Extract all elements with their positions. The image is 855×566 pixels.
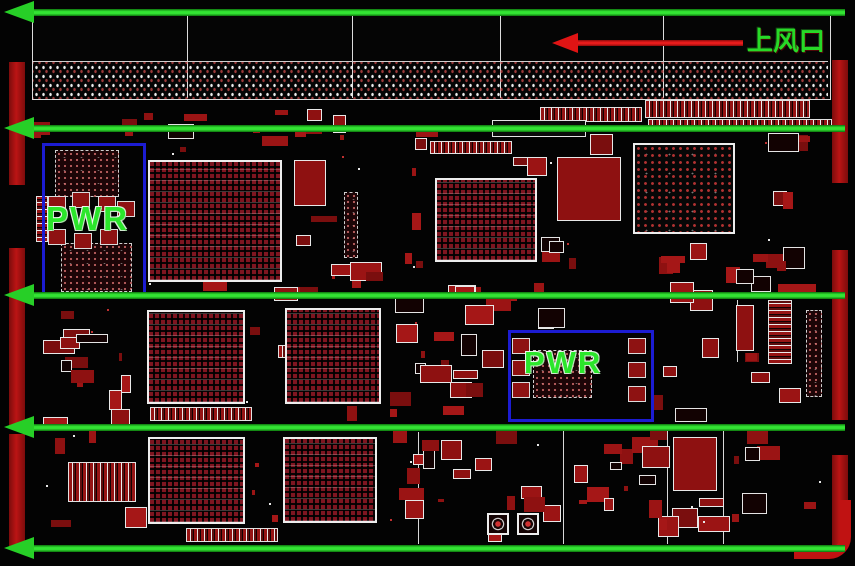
smd-component	[698, 516, 730, 532]
smd-component	[358, 168, 360, 170]
smd-component	[819, 481, 821, 483]
power-pad	[512, 382, 530, 398]
smd-component	[642, 446, 670, 468]
smd-component	[659, 519, 667, 530]
edge-copper-bar-left	[9, 434, 25, 548]
smd-component	[465, 305, 494, 325]
smd-component	[296, 235, 311, 246]
smd-component	[366, 272, 383, 281]
smd-component	[434, 332, 454, 341]
smd-component	[453, 469, 471, 479]
smd-component	[421, 351, 425, 358]
smd-component	[690, 243, 707, 260]
bga-component	[148, 160, 282, 282]
airflow-arrow-body	[30, 424, 845, 431]
smd-component	[407, 468, 420, 484]
edge-copper-bar-left	[9, 248, 25, 428]
smd-component	[663, 366, 677, 377]
power-block-component	[736, 305, 754, 351]
smd-component	[691, 506, 693, 508]
smd-component	[262, 136, 288, 146]
smd-component	[661, 256, 685, 263]
smd-component	[779, 388, 801, 403]
smd-component	[55, 438, 65, 454]
smd-component	[675, 408, 707, 422]
smd-component	[751, 372, 770, 383]
smd-component	[538, 308, 565, 328]
pwr-zone-label-1: PWR	[46, 202, 129, 235]
smd-component	[783, 192, 793, 209]
pcb-layout-board: 上风口 PWRPWR	[0, 0, 855, 566]
connector-strip	[430, 141, 512, 154]
smd-component	[524, 497, 545, 512]
smd-component	[569, 258, 576, 269]
smd-component	[311, 216, 337, 222]
smd-component	[745, 447, 760, 461]
connector-strip	[645, 100, 810, 118]
smd-component	[550, 162, 552, 164]
smd-component	[46, 485, 48, 487]
smd-component	[71, 370, 94, 383]
smd-component	[703, 521, 705, 523]
smd-component	[307, 109, 322, 121]
edge-copper-bar-right	[832, 60, 848, 183]
smd-component	[393, 429, 407, 443]
smd-component	[610, 462, 622, 470]
smd-component	[119, 353, 122, 361]
smd-component	[567, 243, 569, 245]
smd-component	[275, 110, 288, 115]
smd-component	[453, 370, 478, 379]
smd-component	[415, 138, 427, 150]
smd-component	[390, 392, 411, 406]
smd-component	[513, 157, 528, 166]
smd-component	[751, 276, 771, 292]
smd-component	[734, 456, 739, 464]
bga-component	[148, 437, 245, 524]
edge-copper-bar-right	[832, 250, 848, 420]
smd-component	[61, 311, 74, 319]
bga-component	[285, 308, 381, 404]
connector-strip	[768, 300, 792, 364]
smd-component	[422, 440, 439, 451]
smd-component	[574, 465, 588, 483]
smd-component	[184, 114, 207, 121]
power-pad	[628, 362, 646, 378]
smd-component	[753, 254, 768, 262]
smd-component	[405, 500, 424, 519]
pwr-zone-label-2: PWR	[524, 347, 602, 378]
airflow-arrow-head	[4, 1, 34, 23]
smd-component	[699, 498, 724, 507]
vent-arrow-head	[552, 33, 578, 53]
smd-component	[443, 406, 464, 415]
vent-arrow-body	[574, 40, 743, 46]
smd-component	[768, 133, 799, 152]
smd-component	[203, 282, 227, 291]
mounting-component	[517, 513, 539, 535]
smd-component	[272, 515, 278, 522]
smd-component	[172, 153, 174, 155]
smd-component	[412, 168, 416, 176]
connector-strip	[68, 462, 136, 502]
smd-component	[537, 444, 539, 446]
smd-component	[742, 493, 767, 514]
airflow-arrow-body	[30, 292, 845, 299]
connector-dot-grid	[33, 61, 828, 99]
smd-component	[109, 390, 122, 410]
airflow-arrow-head	[4, 284, 34, 306]
silkscreen-line	[563, 430, 564, 544]
smd-component	[420, 365, 452, 383]
airflow-arrow-body	[30, 125, 845, 132]
smd-component	[590, 134, 613, 155]
smd-component	[246, 401, 248, 403]
smd-component	[340, 135, 344, 140]
smd-component	[667, 263, 680, 273]
dot-matrix-component	[806, 310, 822, 397]
smd-component	[347, 406, 357, 421]
smd-component	[252, 490, 255, 495]
bga-component	[283, 437, 377, 523]
smd-component	[416, 261, 423, 268]
smd-component	[441, 440, 462, 460]
power-pad	[628, 386, 646, 402]
smd-component	[410, 461, 412, 463]
smd-component	[269, 503, 271, 505]
smd-component	[76, 334, 108, 343]
smd-component	[144, 113, 153, 120]
smd-component	[405, 253, 412, 264]
smd-component	[549, 241, 564, 253]
smd-component	[466, 383, 483, 397]
smd-component	[461, 334, 477, 356]
smd-component	[121, 375, 131, 393]
smd-component	[331, 264, 351, 276]
bga-component	[147, 310, 245, 404]
smd-component	[732, 514, 739, 522]
smd-component	[73, 435, 75, 437]
smd-component	[250, 327, 260, 335]
smd-component	[507, 496, 515, 510]
smd-component	[783, 247, 805, 269]
smd-component	[149, 283, 151, 285]
bga-component	[435, 178, 537, 262]
smd-component	[624, 486, 628, 491]
smd-component	[475, 458, 492, 471]
power-block-component	[557, 157, 621, 221]
smd-component	[604, 498, 614, 511]
smd-component	[702, 338, 719, 358]
connector-strip	[150, 407, 252, 421]
smd-component	[604, 444, 622, 454]
smd-component	[396, 324, 418, 343]
smd-component	[527, 157, 547, 176]
airflow-arrow-head	[4, 537, 34, 559]
smd-component	[342, 156, 344, 158]
smd-component	[399, 488, 424, 500]
dot-matrix-component	[344, 192, 358, 258]
smd-component	[390, 519, 392, 521]
smd-component	[482, 350, 504, 368]
smd-component	[757, 446, 780, 460]
smd-component	[125, 507, 147, 528]
power-block-component	[673, 437, 717, 491]
mounting-component	[487, 513, 509, 535]
smd-component	[180, 147, 186, 152]
smd-component	[412, 213, 421, 230]
smd-component	[413, 266, 415, 268]
smd-component	[639, 475, 656, 485]
bga-component	[633, 143, 735, 234]
airflow-arrow-head	[4, 416, 34, 438]
smd-component	[107, 309, 109, 311]
smd-component	[543, 505, 561, 522]
top-vent-label: 上风口	[747, 28, 825, 54]
smd-component	[579, 500, 587, 504]
smd-component	[777, 261, 786, 271]
smd-component	[255, 463, 259, 467]
power-pad	[628, 338, 646, 354]
smd-component	[746, 353, 757, 361]
connector-strip	[186, 528, 278, 542]
smd-component	[390, 409, 397, 417]
smd-component	[654, 395, 663, 410]
airflow-arrow-body	[30, 545, 845, 552]
smd-component	[91, 331, 93, 333]
smd-component	[51, 520, 71, 527]
smd-component	[736, 269, 754, 284]
smd-component	[649, 500, 662, 518]
smd-component	[438, 499, 444, 502]
smd-component	[765, 142, 767, 144]
airflow-arrow-body	[30, 9, 845, 16]
airflow-arrow-head	[4, 117, 34, 139]
power-block-component	[294, 160, 326, 206]
smd-component	[768, 239, 770, 241]
